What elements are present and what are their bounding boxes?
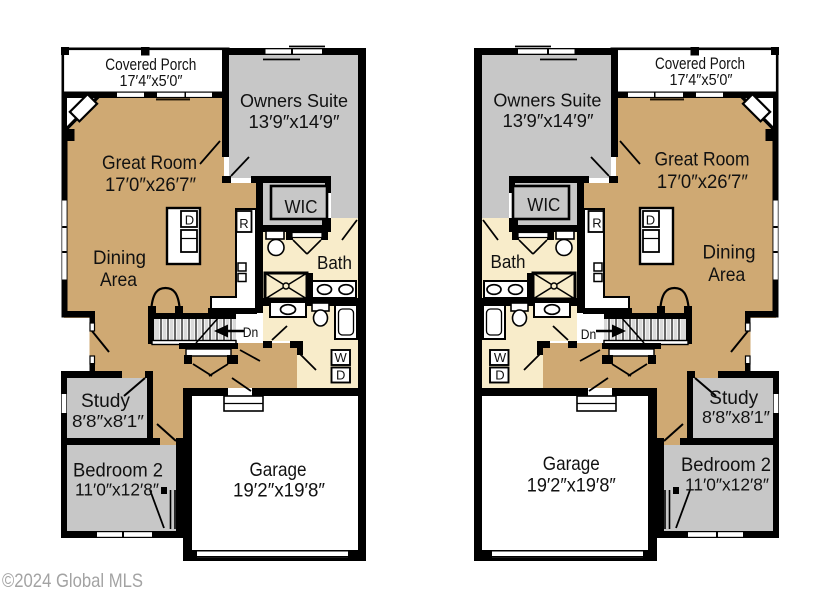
svg-text:Owners Suite: Owners Suite [493,91,601,111]
svg-text:Bath: Bath [317,253,352,273]
svg-text:19′2″x19′8″: 19′2″x19′8″ [233,480,325,502]
svg-text:8′8″x8′1″: 8′8″x8′1″ [702,407,770,427]
svg-text:17′4″x5′0″: 17′4″x5′0″ [670,72,733,89]
svg-text:Area: Area [708,264,745,286]
svg-text:Dn: Dn [243,325,259,340]
svg-text:WIC: WIC [527,195,560,215]
svg-text:Covered Porch: Covered Porch [655,55,745,73]
svg-text:Great Room: Great Room [102,152,197,174]
svg-text:Bedroom 2: Bedroom 2 [73,461,163,482]
svg-text:Garage: Garage [250,459,307,481]
svg-text:Dining: Dining [93,247,146,269]
svg-text:D: D [495,368,504,383]
svg-text:13′9″x14′9″: 13′9″x14′9″ [503,111,595,131]
svg-text:D: D [646,213,655,228]
svg-text:8′8″x8′1″: 8′8″x8′1″ [72,411,144,431]
svg-text:Covered Porch: Covered Porch [105,56,196,74]
svg-text:©2024 Global MLS: ©2024 Global MLS [2,570,143,592]
svg-text:D: D [185,213,194,228]
svg-text:D: D [336,368,345,383]
svg-text:W: W [335,350,348,365]
svg-text:13′9″x14′9″: 13′9″x14′9″ [249,112,341,132]
svg-text:W: W [494,350,507,365]
svg-text:17′0″x26′7″: 17′0″x26′7″ [657,171,748,193]
svg-text:11′0″x12′8″: 11′0″x12′8″ [75,480,159,500]
svg-text:R: R [239,216,248,231]
svg-text:17′4″x5′0″: 17′4″x5′0″ [120,73,183,90]
svg-text:11′0″x12′8″: 11′0″x12′8″ [685,475,769,495]
svg-text:Bedroom 2: Bedroom 2 [681,455,771,476]
svg-text:Study: Study [81,391,130,412]
svg-text:Dn: Dn [581,327,597,342]
svg-text:19′2″x19′8″: 19′2″x19′8″ [527,475,616,497]
svg-text:R: R [592,216,601,231]
svg-text:Area: Area [100,269,137,291]
svg-text:Garage: Garage [543,453,600,475]
svg-text:Dining: Dining [703,242,756,264]
svg-text:Great Room: Great Room [655,149,750,171]
svg-text:Bath: Bath [491,252,526,272]
svg-text:Owners Suite: Owners Suite [240,91,348,111]
svg-text:17′0″x26′7″: 17′0″x26′7″ [105,174,196,196]
svg-text:Study: Study [709,388,758,409]
svg-text:WIC: WIC [285,197,318,217]
